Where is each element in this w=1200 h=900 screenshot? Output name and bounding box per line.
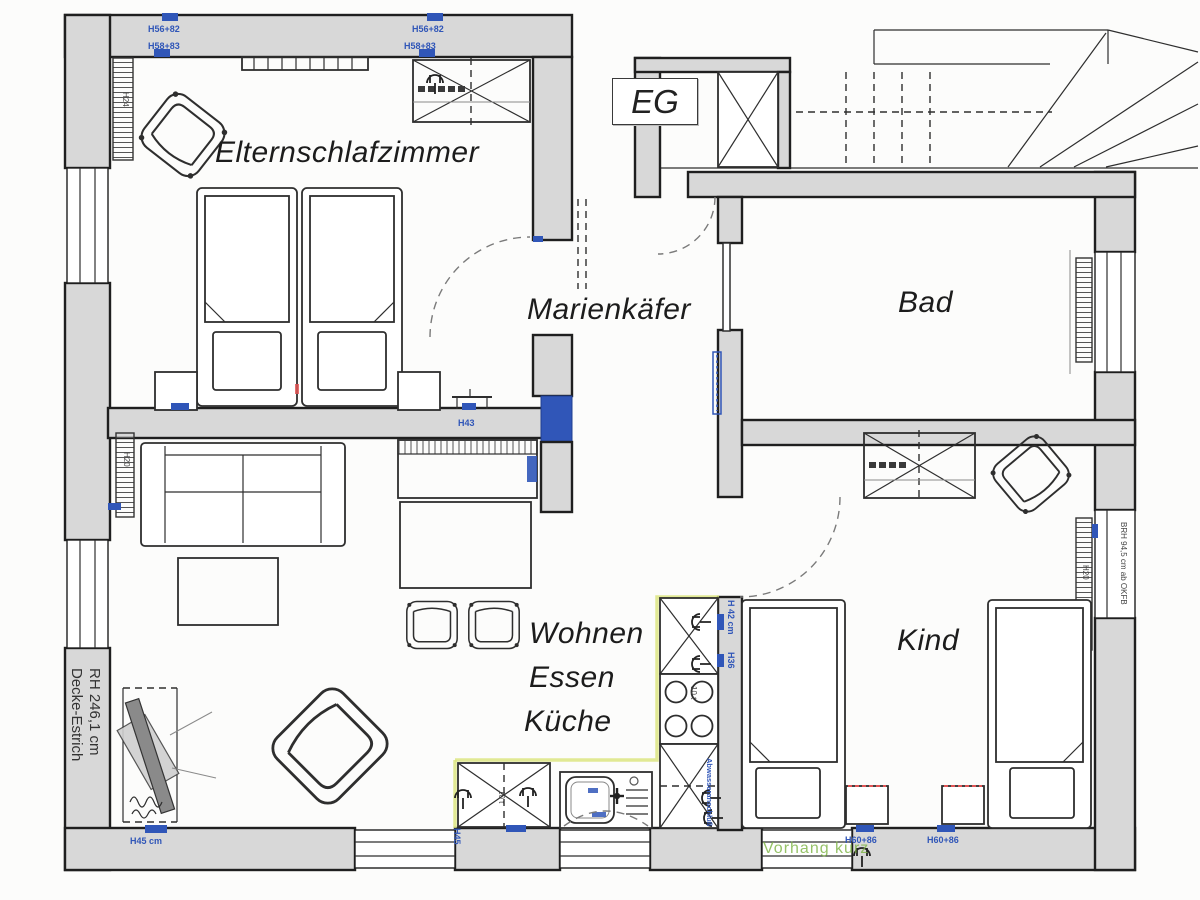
- skylight-bedroom: [413, 58, 530, 126]
- curtain-note: Vorhang kurz: [763, 840, 869, 858]
- marker-label: H60+86: [927, 835, 959, 845]
- door-swing-bedroom: [430, 237, 530, 337]
- marker-label: H45: [452, 828, 462, 845]
- new-wall-marker: [541, 396, 572, 442]
- stove: [660, 674, 718, 744]
- window-living-bottom: [355, 830, 455, 868]
- marker-label: H58+83: [404, 41, 436, 51]
- floor-label-box: EG: [612, 78, 698, 125]
- piano-cabinet: [117, 688, 216, 822]
- door-leaf-bath: [723, 243, 730, 331]
- window-kitchen-bottom: [560, 830, 650, 868]
- radiator-label: H20: [1081, 565, 1090, 580]
- radiator-label: H20: [122, 452, 131, 467]
- radiator-bedroom: [113, 58, 133, 160]
- child-nightstand-2: [942, 786, 984, 824]
- marker-label: H36: [726, 652, 736, 669]
- room-label-hall: Marienkäfer: [527, 293, 691, 327]
- room-label-parents-bedroom: Elternschlafzimmer: [215, 136, 479, 170]
- room-label-dining: Essen: [529, 661, 615, 695]
- sideboard: [398, 440, 537, 498]
- dining-table: [400, 502, 531, 588]
- sill-height-note: BRH 94,5 cm ab OKFB: [1119, 522, 1128, 605]
- double-bed: [197, 188, 402, 406]
- door-swing-entry: [658, 197, 715, 254]
- ceiling-height-note: RH 246,1 cm Decke-Estrich: [67, 668, 103, 761]
- marker-label: H45 cm: [130, 836, 162, 846]
- radiator-bath: [1076, 258, 1092, 362]
- room-parents-bedroom-furniture: [113, 57, 530, 410]
- floor-plan-drawing: [0, 0, 1200, 900]
- door-swing-child: [740, 497, 840, 597]
- kitchen-tall-cabinet: [660, 598, 718, 674]
- child-bed-right: [988, 600, 1091, 828]
- coffee-table: [178, 558, 278, 625]
- marker-label: H43: [458, 418, 475, 428]
- stove-label: 10 t: [689, 686, 698, 699]
- room-label-child: Kind: [897, 624, 959, 658]
- wardrobe-rail: [242, 57, 368, 70]
- marker-label: H56+82: [412, 24, 444, 34]
- marker-label: H 42 cm: [726, 600, 736, 635]
- child-bed-left: [742, 600, 845, 828]
- window-living-left: [67, 540, 108, 648]
- room-label-living: Wohnen: [529, 617, 644, 651]
- room-height: RH 246,1 cm: [85, 668, 103, 761]
- cabinet-label: 10 t: [497, 790, 506, 803]
- kitchen-sink: [560, 772, 652, 828]
- dining-chair-2: [469, 601, 519, 648]
- drain-note: Abwasseranschluß: [705, 758, 714, 826]
- armchair-living: [266, 682, 393, 809]
- window-bedroom-left: [67, 168, 108, 283]
- ceiling-note: Decke-Estrich: [67, 668, 85, 761]
- room-label-kitchen: Küche: [524, 705, 612, 739]
- sofa: [141, 443, 345, 546]
- radiator-label: H24: [121, 92, 130, 107]
- floor-plan: EG Elternschlafzimmer Marienkäfer Bad Wo…: [0, 0, 1200, 900]
- room-label-bath: Bad: [898, 286, 953, 320]
- marker-label: H58+83: [148, 41, 180, 51]
- marker-label: H56+82: [148, 24, 180, 34]
- floor-label: EG: [631, 83, 679, 121]
- nightstand-right: [398, 372, 440, 410]
- window-bath-right: [1070, 250, 1135, 374]
- child-nightstand-1: [846, 786, 888, 824]
- chimney: [718, 72, 778, 167]
- dining-chair-1: [407, 601, 457, 648]
